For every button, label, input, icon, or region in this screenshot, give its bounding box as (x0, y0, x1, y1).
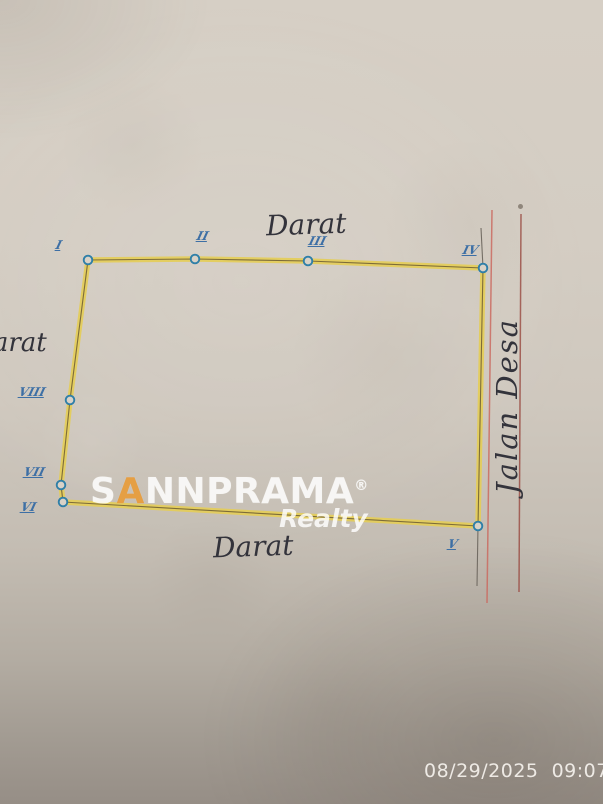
paper-speck (518, 204, 523, 209)
survey-point-VI (59, 498, 68, 507)
registered-mark-icon: ® (354, 478, 369, 494)
survey-point-label-III: III (307, 234, 327, 248)
survey-point-IV (479, 264, 488, 273)
survey-point-III (304, 257, 313, 266)
area-label-bottom: Darat (212, 529, 294, 565)
survey-point-V (474, 522, 483, 531)
extension-line-2 (477, 526, 478, 586)
survey-point-label-VIII: VIII (17, 385, 47, 399)
survey-point-VIII (66, 396, 75, 405)
road-label: Jalan Desa (490, 318, 524, 494)
watermark-logo-a: A (116, 471, 144, 512)
camera-timestamp: 08/29/2025 09:07 (424, 760, 603, 782)
survey-point-VII (57, 481, 66, 490)
survey-point-label-VII: VII (22, 465, 46, 479)
extension-line-1 (481, 228, 483, 268)
area-label-left: Darat (0, 328, 47, 358)
area-label-top: Darat (265, 207, 347, 243)
survey-point-II (191, 255, 200, 264)
watermark-brand-part1: S (90, 471, 116, 512)
watermark: SANNPRAMA® Realty (90, 473, 369, 533)
survey-point-I (84, 256, 93, 265)
